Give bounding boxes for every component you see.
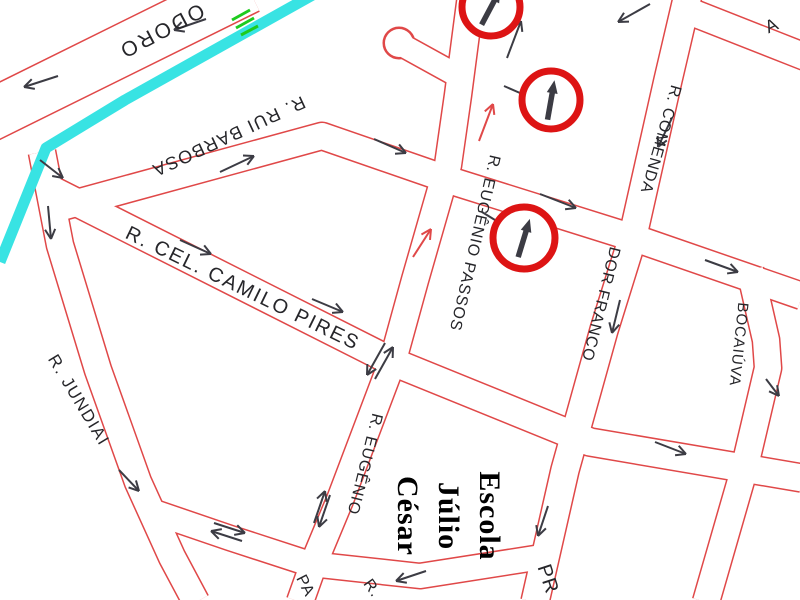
school-label-line2: Júlio	[432, 482, 465, 550]
school-label-line3: César	[391, 476, 424, 556]
one-way-sign	[522, 71, 580, 129]
street-label-camilo-pires: R. CEL. CAMILO PIRES	[122, 222, 363, 355]
school-label-line1: Escola	[473, 471, 506, 560]
map-canvas: ODOROR. RUI BARBOSAR. CEL. CAMILO PIRESR…	[0, 0, 800, 600]
street-label-bocaiuva: BOCAIÚVA	[726, 302, 752, 388]
sign-leader-line	[504, 86, 520, 93]
one-way-sign	[493, 207, 555, 269]
one-way-sign	[462, 0, 520, 36]
culdesac-bulb	[385, 29, 413, 57]
school-label: Escola Júlio César	[391, 471, 506, 560]
street-map: ODOROR. RUI BARBOSAR. CEL. CAMILO PIRESR…	[0, 0, 800, 600]
direction-arrow	[618, 4, 650, 22]
direction-arrow	[479, 104, 494, 141]
